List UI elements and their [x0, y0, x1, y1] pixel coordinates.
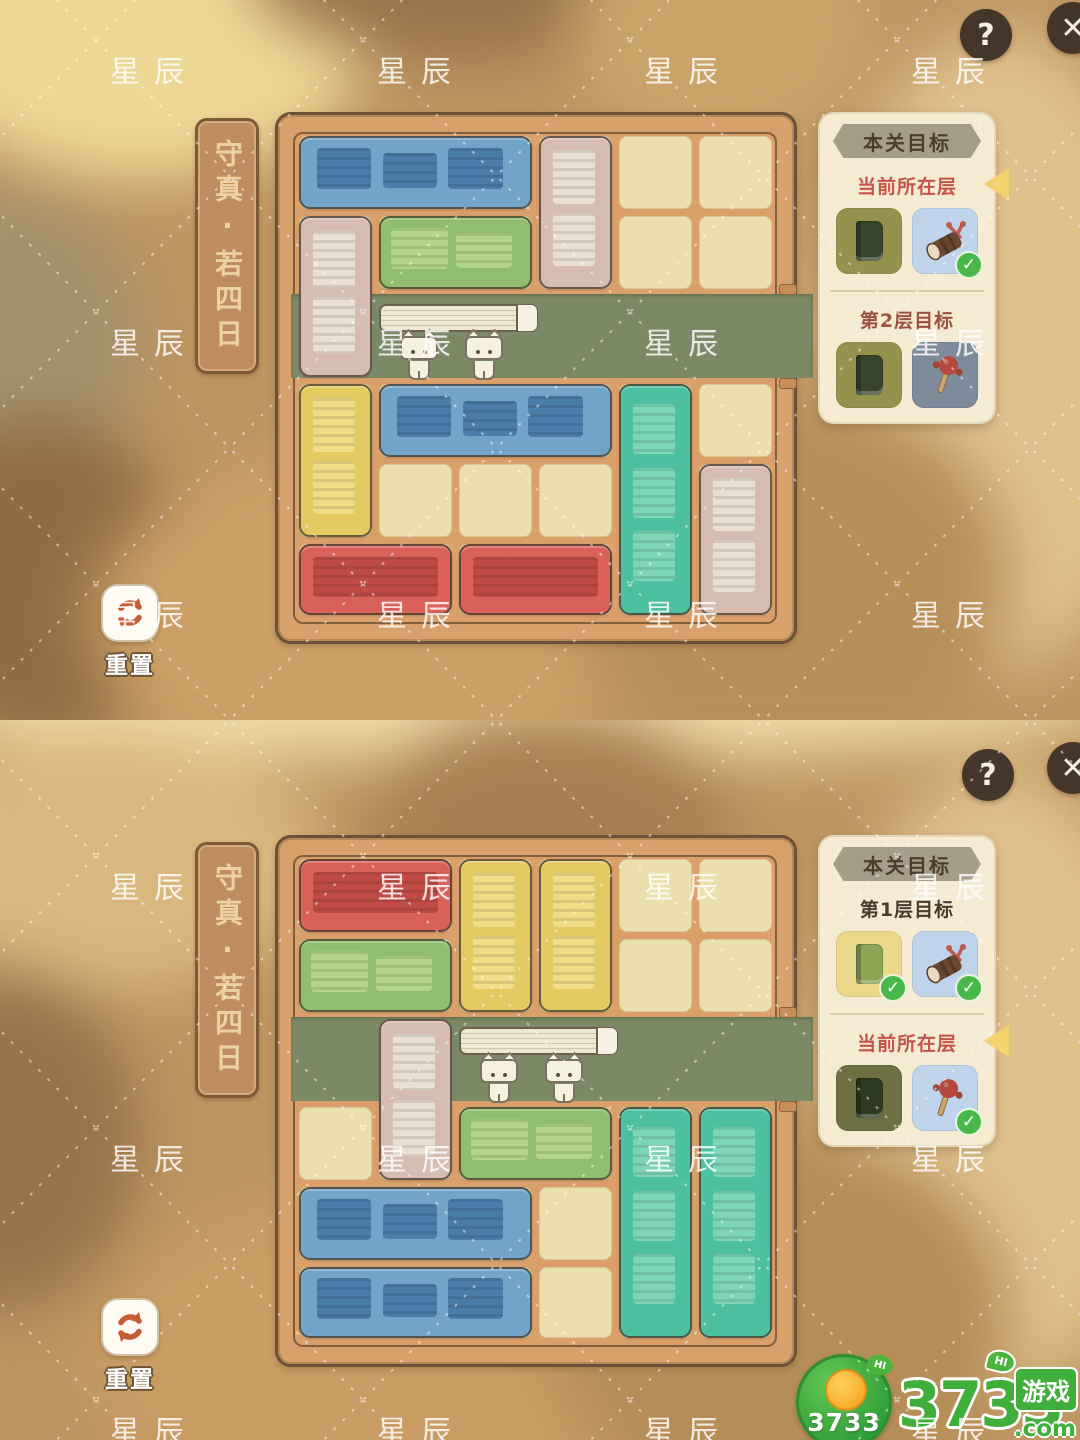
puzzle-block-green[interactable] — [299, 939, 452, 1012]
help-button[interactable]: ? — [960, 9, 1012, 61]
rattle-icon — [921, 351, 969, 399]
book-spines — [713, 1191, 756, 1241]
book-spines — [393, 1100, 436, 1157]
check-icon: ✓ — [955, 974, 983, 1002]
book-spines — [376, 956, 433, 991]
panel-title-ribbon: 本关目标 — [833, 847, 981, 881]
board-cell — [539, 1267, 612, 1338]
book-spines — [553, 936, 596, 990]
puzzle-block-pink[interactable] — [379, 1019, 452, 1180]
board-cell — [619, 216, 692, 289]
cat-figure — [545, 1057, 583, 1107]
hi-bubble-icon: HI — [865, 1352, 895, 1378]
book-spines — [633, 531, 676, 581]
book-spines — [448, 1278, 502, 1318]
book-spines — [313, 231, 356, 288]
logo-wordmark: HI 3733 游戏 .com — [898, 1360, 1076, 1440]
board-cell — [619, 939, 692, 1012]
logo-domain-text: .com — [1014, 1416, 1076, 1440]
book-spines — [317, 1199, 371, 1240]
book-spines — [553, 873, 596, 927]
book-spines — [536, 1124, 593, 1159]
check-icon: ✓ — [955, 251, 983, 279]
objective-card-drum: ✓ — [912, 208, 978, 274]
objective-card-drum: ✓ — [912, 931, 978, 997]
level-plaque: 守真·若四日 — [195, 842, 259, 1098]
objectives-panel: 本关目标 第1层目标 ✓ — [818, 835, 996, 1147]
mascot-icon — [825, 1369, 867, 1411]
book-spines — [448, 1199, 502, 1240]
objective-card-book: ✓ — [836, 342, 902, 408]
book-spines — [633, 1254, 676, 1304]
board-cell — [299, 1107, 372, 1180]
book-spines — [313, 461, 356, 515]
panel-title: 本关目标 — [863, 127, 951, 156]
book-spines — [397, 396, 451, 437]
cat-figure — [400, 334, 438, 384]
close-icon: ✕ — [1060, 11, 1080, 46]
book-icon — [856, 1078, 883, 1118]
board-cell — [379, 464, 452, 537]
book-spines — [463, 401, 517, 436]
book-spines — [473, 557, 598, 597]
puzzle-block-teal[interactable] — [619, 1107, 692, 1338]
book-spines — [713, 1254, 756, 1304]
board-cell — [539, 1187, 612, 1260]
floor-label: 第1层目标 — [818, 895, 996, 922]
bench-piece[interactable] — [379, 300, 532, 380]
puzzle-block-pink[interactable] — [299, 216, 372, 377]
book-spines — [633, 1191, 676, 1241]
panel-divider — [830, 290, 984, 292]
level-plaque: 守真·若四日 — [195, 118, 259, 374]
reset-button[interactable]: 重置 — [98, 584, 162, 680]
objective-section: 当前所在层 ✓ — [818, 1029, 996, 1131]
close-icon: ✕ — [1060, 751, 1080, 786]
objective-card-book: ✓ — [836, 1065, 902, 1131]
cat-figure — [480, 1057, 518, 1107]
level-title: 守真·若四日 — [207, 139, 247, 354]
board-cell — [699, 859, 772, 932]
objective-section: 当前所在层 ✓ — [818, 172, 996, 274]
book-spines — [528, 396, 582, 437]
logo-badge: HI 3733 — [796, 1354, 892, 1440]
puzzle-block-red[interactable] — [299, 859, 452, 932]
screenshot-upper: 守真·若四日 本关目标 当前所在层 ✓ — [0, 0, 1080, 720]
bench-piece[interactable] — [459, 1023, 612, 1103]
book-spines — [393, 1034, 436, 1091]
book-spines — [471, 1119, 528, 1160]
scroll-block — [379, 304, 538, 332]
puzzle-block-red[interactable] — [459, 544, 612, 615]
reset-icon[interactable] — [101, 1298, 159, 1356]
book-spines — [313, 872, 438, 913]
board-cell — [699, 939, 772, 1012]
puzzle-block-green[interactable] — [379, 216, 532, 289]
book-spines — [473, 936, 516, 990]
puzzle-block-blue[interactable] — [299, 136, 532, 209]
book-spines — [713, 478, 756, 531]
reset-label: 重置 — [98, 646, 162, 680]
floor-label: 当前所在层 — [818, 172, 996, 199]
puzzle-block-green[interactable] — [459, 1107, 612, 1180]
objective-card-rattle: ✓ — [912, 342, 978, 408]
check-icon: ✓ — [955, 1108, 983, 1136]
board-grid — [293, 132, 777, 624]
reset-label: 重置 — [98, 1360, 162, 1394]
screenshot-lower: 守真·若四日 本关目标 第1层目标 ✓ — [0, 720, 1080, 1440]
book-spines — [313, 398, 356, 452]
reset-icon[interactable] — [101, 584, 159, 642]
panel-divider — [830, 1013, 984, 1015]
book-spines — [633, 468, 676, 518]
board-grid — [293, 855, 777, 1347]
panel-title: 本关目标 — [863, 850, 951, 879]
exit-edge — [779, 1007, 797, 1018]
question-icon: ? — [977, 18, 994, 53]
puzzle-block-yellow[interactable] — [459, 859, 532, 1012]
puzzle-block-blue[interactable] — [299, 1267, 532, 1338]
floor-label: 第2层目标 — [818, 306, 996, 333]
book-spines — [391, 228, 448, 269]
logo-badge-text: 3733 — [799, 1408, 889, 1437]
panel-title-ribbon: 本关目标 — [833, 124, 981, 158]
book-spines — [473, 873, 516, 927]
puzzle-block-pink[interactable] — [699, 464, 772, 615]
book-spines — [553, 150, 596, 204]
puzzle-board — [275, 112, 797, 644]
reset-button[interactable]: 重置 — [98, 1298, 162, 1394]
book-spines — [313, 557, 438, 597]
level-title: 守真·若四日 — [207, 863, 247, 1078]
objective-section: 第2层目标 ✓ — [818, 306, 996, 408]
puzzle-block-yellow[interactable] — [299, 384, 372, 537]
board-cell — [619, 136, 692, 209]
board-cell — [539, 464, 612, 537]
book-spines — [633, 1127, 676, 1177]
puzzle-block-teal[interactable] — [619, 384, 692, 615]
book-spines — [311, 951, 368, 992]
help-button[interactable]: ? — [962, 749, 1014, 801]
puzzle-block-teal[interactable] — [699, 1107, 772, 1338]
floor-label: 当前所在层 — [818, 1029, 996, 1056]
book-spines — [313, 297, 356, 354]
objective-card-book: ✓ — [836, 208, 902, 274]
book-spines — [713, 540, 756, 593]
book-icon — [856, 221, 883, 261]
book-spines — [317, 1278, 371, 1318]
board-cell — [699, 136, 772, 209]
puzzle-block-pink[interactable] — [539, 136, 612, 289]
puzzle-block-red[interactable] — [299, 544, 452, 615]
objective-card-book: ✓ — [836, 931, 902, 997]
book-spines — [448, 148, 502, 189]
question-icon: ? — [979, 758, 996, 793]
book-icon — [856, 355, 883, 395]
objective-card-rattle: ✓ — [912, 1065, 978, 1131]
board-cell — [699, 384, 772, 457]
puzzle-block-yellow[interactable] — [539, 859, 612, 1012]
book-spines — [713, 1127, 756, 1177]
book-spines — [383, 1284, 437, 1318]
board-cell — [459, 464, 532, 537]
scroll-block — [459, 1027, 618, 1055]
book-spines — [383, 153, 437, 188]
board-cell — [699, 216, 772, 289]
exit-edge — [779, 284, 797, 295]
book-spines — [553, 213, 596, 267]
exit-edge — [779, 1101, 797, 1112]
book-spines — [383, 1204, 437, 1239]
book-icon — [856, 944, 883, 984]
puzzle-board — [275, 835, 797, 1367]
exit-edge — [779, 378, 797, 389]
puzzle-block-blue[interactable] — [379, 384, 612, 457]
book-spines — [317, 148, 371, 189]
objectives-panel: 本关目标 当前所在层 ✓ — [818, 112, 996, 424]
objective-section: 第1层目标 ✓ — [818, 895, 996, 997]
book-spines — [456, 233, 513, 268]
logo-game-text: 游戏 — [1014, 1367, 1078, 1412]
check-icon: ✓ — [879, 974, 907, 1002]
book-spines — [633, 404, 676, 454]
cat-figure — [465, 334, 503, 384]
puzzle-block-blue[interactable] — [299, 1187, 532, 1260]
board-cell — [619, 859, 692, 932]
logo-3733[interactable]: HI 3733 HI 3733 游戏 .com — [796, 1354, 1076, 1440]
